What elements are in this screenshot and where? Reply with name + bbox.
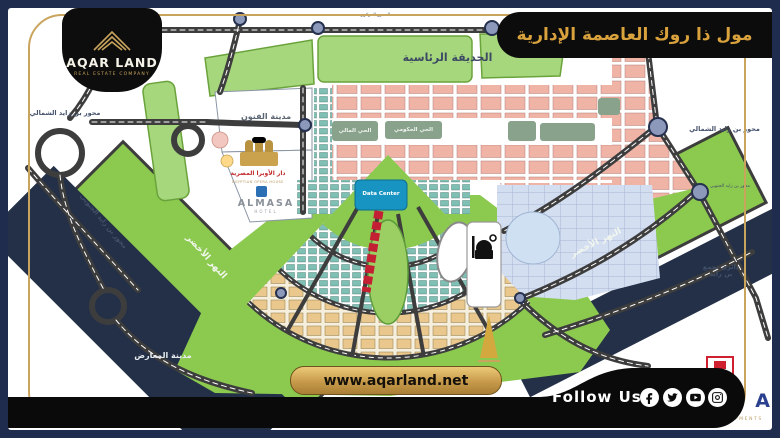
brand-tagline: REAL ESTATE COMPANY bbox=[74, 72, 150, 77]
map-window: المحور المركزي الحديقة الرئاسية محور بن … bbox=[8, 8, 772, 430]
follow-us-label: Follow Us bbox=[552, 388, 642, 406]
developer-stamp bbox=[706, 356, 734, 379]
page-title: مول ذا روك العاصمة الإدارية bbox=[517, 25, 753, 45]
mosque-strip bbox=[467, 222, 501, 307]
aqar-wings-icon bbox=[85, 23, 139, 53]
youtube-icon[interactable] bbox=[686, 388, 705, 407]
facebook-icon[interactable] bbox=[640, 388, 659, 407]
title-banner: مول ذا روك العاصمة الإدارية bbox=[497, 12, 772, 58]
almasa-logo bbox=[256, 186, 267, 197]
website-text: www.aqarland.net bbox=[324, 373, 469, 389]
brand-badge: AQAR LAND REAL ESTATE COMPANY bbox=[62, 8, 162, 92]
website-link[interactable]: www.aqarland.net bbox=[290, 366, 502, 395]
lake bbox=[506, 212, 560, 264]
developer-wordmark: A bbox=[755, 390, 770, 412]
brand-name: AQAR LAND bbox=[66, 55, 157, 70]
twitter-icon[interactable] bbox=[663, 388, 682, 407]
instagram-icon[interactable] bbox=[708, 388, 727, 407]
data-center-box bbox=[355, 180, 407, 210]
developer-label: DEVELOPMENTS bbox=[700, 417, 770, 422]
